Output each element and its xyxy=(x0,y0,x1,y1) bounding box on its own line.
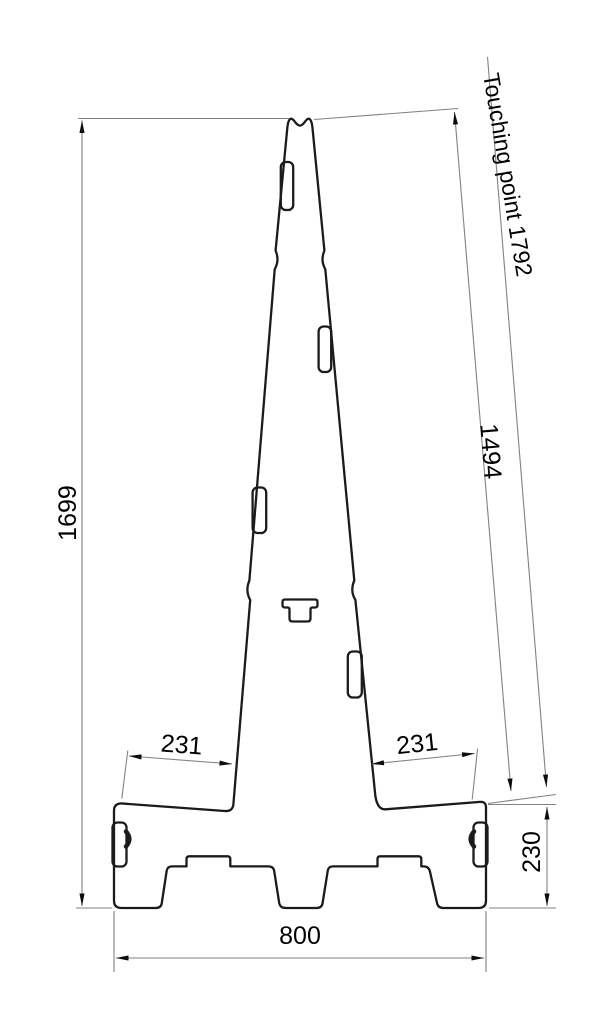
dimension-label-overall-height: 1699 xyxy=(54,485,82,541)
dimension-label-shoulder-left: 231 xyxy=(160,729,204,760)
dimension-label-base-height: 230 xyxy=(518,831,546,873)
dimension-label-touching-point: Touching point 1792 xyxy=(478,71,538,278)
dimension-label-base-width: 800 xyxy=(279,922,321,950)
extension-line xyxy=(122,751,128,799)
pylon-base-outline xyxy=(114,119,486,908)
drawing-sheet: 1699 1494 Touching point 1792 230 231 23… xyxy=(0,0,611,1024)
dimension-label-shoulder-right: 231 xyxy=(395,728,439,760)
pylon-and-base xyxy=(113,119,488,908)
dimension-label-slant-length: 1494 xyxy=(474,422,506,480)
technical-drawing-canvas: 1699 1494 Touching point 1792 230 231 23… xyxy=(0,0,611,1024)
extension-line-peak xyxy=(314,109,458,120)
extension-line xyxy=(472,749,477,800)
touch-plane-line xyxy=(488,795,556,804)
